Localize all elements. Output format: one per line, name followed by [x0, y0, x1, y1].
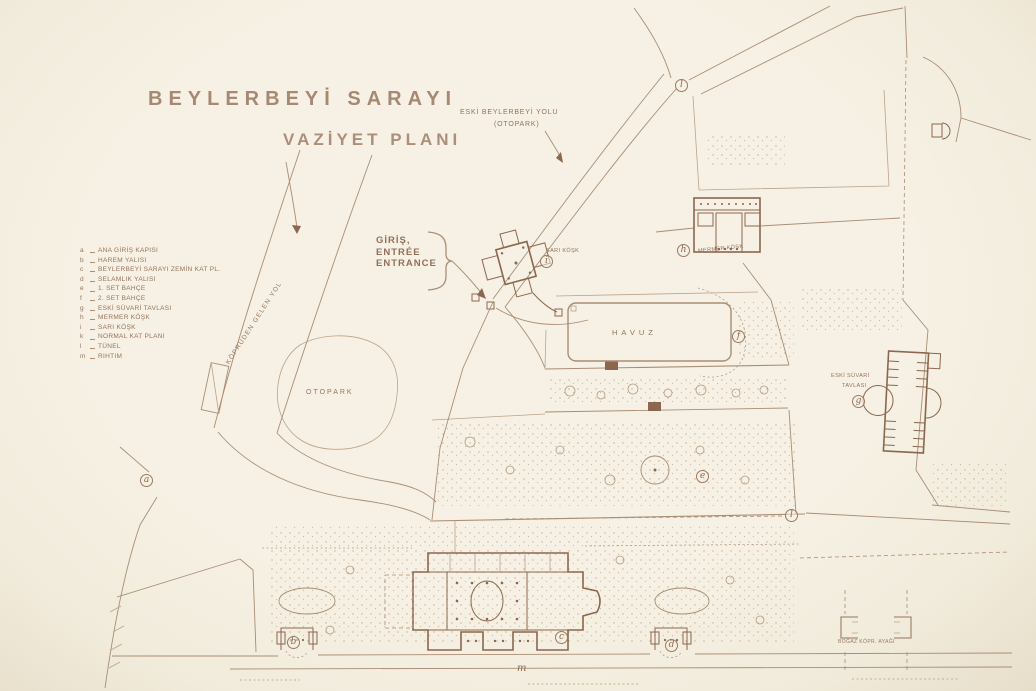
legend-dash — [90, 315, 95, 320]
marker-stable: g — [852, 395, 865, 408]
marker-main-gate: a — [140, 474, 153, 487]
legend-item: e1. SET BAHÇE — [80, 284, 220, 294]
site-plan-sheet: BEYLERBEYİ SARAYI VAZİYET PLANI aANA GİR… — [0, 0, 1036, 691]
legend-item: bHAREM YALISI — [80, 256, 220, 266]
legend-letter: i — [80, 323, 87, 333]
legend-letter: c — [80, 265, 87, 275]
quay-letter: m — [517, 663, 526, 674]
legend-dash — [90, 344, 95, 349]
marker-marble-kiosk: h — [677, 244, 690, 257]
legend-dash — [90, 248, 95, 253]
legend-dash — [90, 258, 95, 263]
legend-label: ANA GİRİŞ KAPISI — [98, 246, 158, 256]
legend-dash — [90, 306, 95, 311]
legend-label: RIHTIM — [98, 352, 122, 362]
marker-tunnel-top: l — [675, 79, 688, 92]
legend-label: 2. SET BAHÇE — [98, 294, 146, 304]
marker-yellow-kiosk: i — [540, 255, 553, 268]
pool-label: HAVUZ — [612, 328, 657, 337]
legend-label: NORMAL KAT PLANI — [98, 332, 165, 342]
legend-label: MERMER KÖŞK — [98, 313, 150, 323]
marker-tunnel: l — [785, 509, 798, 522]
stable-label-line2: TAVLASI — [842, 383, 867, 389]
legend-item: lTÜNEL — [80, 342, 220, 352]
legend-item: mRIHTIM — [80, 352, 220, 362]
legend-dash — [90, 335, 95, 340]
legend-label: HAREM YALISI — [98, 256, 147, 266]
entrance-label-fr: ENTRÉE — [376, 247, 437, 259]
terrace-walls — [262, 263, 805, 552]
legend-letter: f — [80, 294, 87, 304]
legend-dash — [90, 296, 95, 301]
legend-letter: m — [80, 352, 87, 362]
legend-letter: l — [80, 342, 87, 352]
legend-item: kNORMAL KAT PLANI — [80, 332, 220, 342]
legend-letter: e — [80, 284, 87, 294]
legend-item: f2. SET BAHÇE — [80, 294, 220, 304]
legend-item: iSARI KÖŞK — [80, 323, 220, 333]
legend-dash — [90, 354, 95, 359]
legend-label: SARI KÖŞK — [98, 323, 136, 333]
marker-selamlik-pavilion: d — [665, 639, 678, 652]
quay-lines — [112, 653, 1012, 684]
legend-label: TÜNEL — [98, 342, 121, 352]
legend-letter: b — [80, 256, 87, 266]
legend-item: cBEYLERBEYİ SARAYI ZEMİN KAT PL. — [80, 265, 220, 275]
shoreline — [105, 447, 256, 688]
marker-second-terrace: f — [732, 330, 745, 343]
marker-first-terrace: e — [696, 470, 709, 483]
marker-palace: c — [555, 631, 568, 644]
legend-item: hMERMER KÖŞK — [80, 313, 220, 323]
old-road-label: ESKİ BEYLERBEYİ YOLU — [460, 109, 558, 116]
entrance-label: GİRİŞ, ENTRÉE ENTRANCE — [376, 235, 437, 270]
legend-letter: k — [80, 332, 87, 342]
stable-label-line1: ESKİ SÜVARİ — [831, 373, 870, 379]
legend-item: gESKİ SÜVARİ TAVLASI — [80, 304, 220, 314]
entrance-bracket — [428, 232, 494, 309]
entrance-label-en: ENTRANCE — [376, 258, 437, 270]
legend-dash — [90, 287, 95, 292]
legend-letter: d — [80, 275, 87, 285]
marker-harem-pavilion: b — [287, 636, 300, 649]
sheet-title: BEYLERBEYİ SARAYI — [148, 88, 457, 111]
legend-label: ESKİ SÜVARİ TAVLASI — [98, 304, 172, 314]
kiosk-gate — [555, 309, 562, 316]
legend-dash — [90, 267, 95, 272]
legend-letter: g — [80, 304, 87, 314]
parking-label: OTOPARK — [306, 389, 354, 396]
legend-label: BEYLERBEYİ SARAYI ZEMİN KAT PL. — [98, 265, 220, 275]
legend-label: 1. SET BAHÇE — [98, 284, 146, 294]
yellow-kiosk-label: SARI KÖŞK — [546, 248, 579, 254]
legend-letter: a — [80, 246, 87, 256]
entrance-label-tr: GİRİŞ, — [376, 235, 437, 247]
sheet-subtitle: VAZİYET PLANI — [283, 130, 461, 150]
legend: aANA GİRİŞ KAPISI bHAREM YALISI cBEYLERB… — [80, 246, 220, 361]
kiosk-path — [533, 293, 557, 312]
bridge-pier — [841, 590, 911, 670]
bridge-pier-label: BOĞAZ KÖPR. AYAĞI — [838, 639, 895, 645]
legend-letter: h — [80, 313, 87, 323]
legend-label: SELAMLIK YALISI — [98, 275, 156, 285]
legend-dash — [90, 277, 95, 282]
legend-item: dSELAMLIK YALISI — [80, 275, 220, 285]
old-road-parking-label: (OTOPARK) — [494, 121, 539, 128]
marble-kiosk-plan — [694, 198, 760, 252]
stable-plan — [860, 350, 943, 454]
legend-item: aANA GİRİŞ KAPISI — [80, 246, 220, 256]
legend-dash — [90, 325, 95, 330]
